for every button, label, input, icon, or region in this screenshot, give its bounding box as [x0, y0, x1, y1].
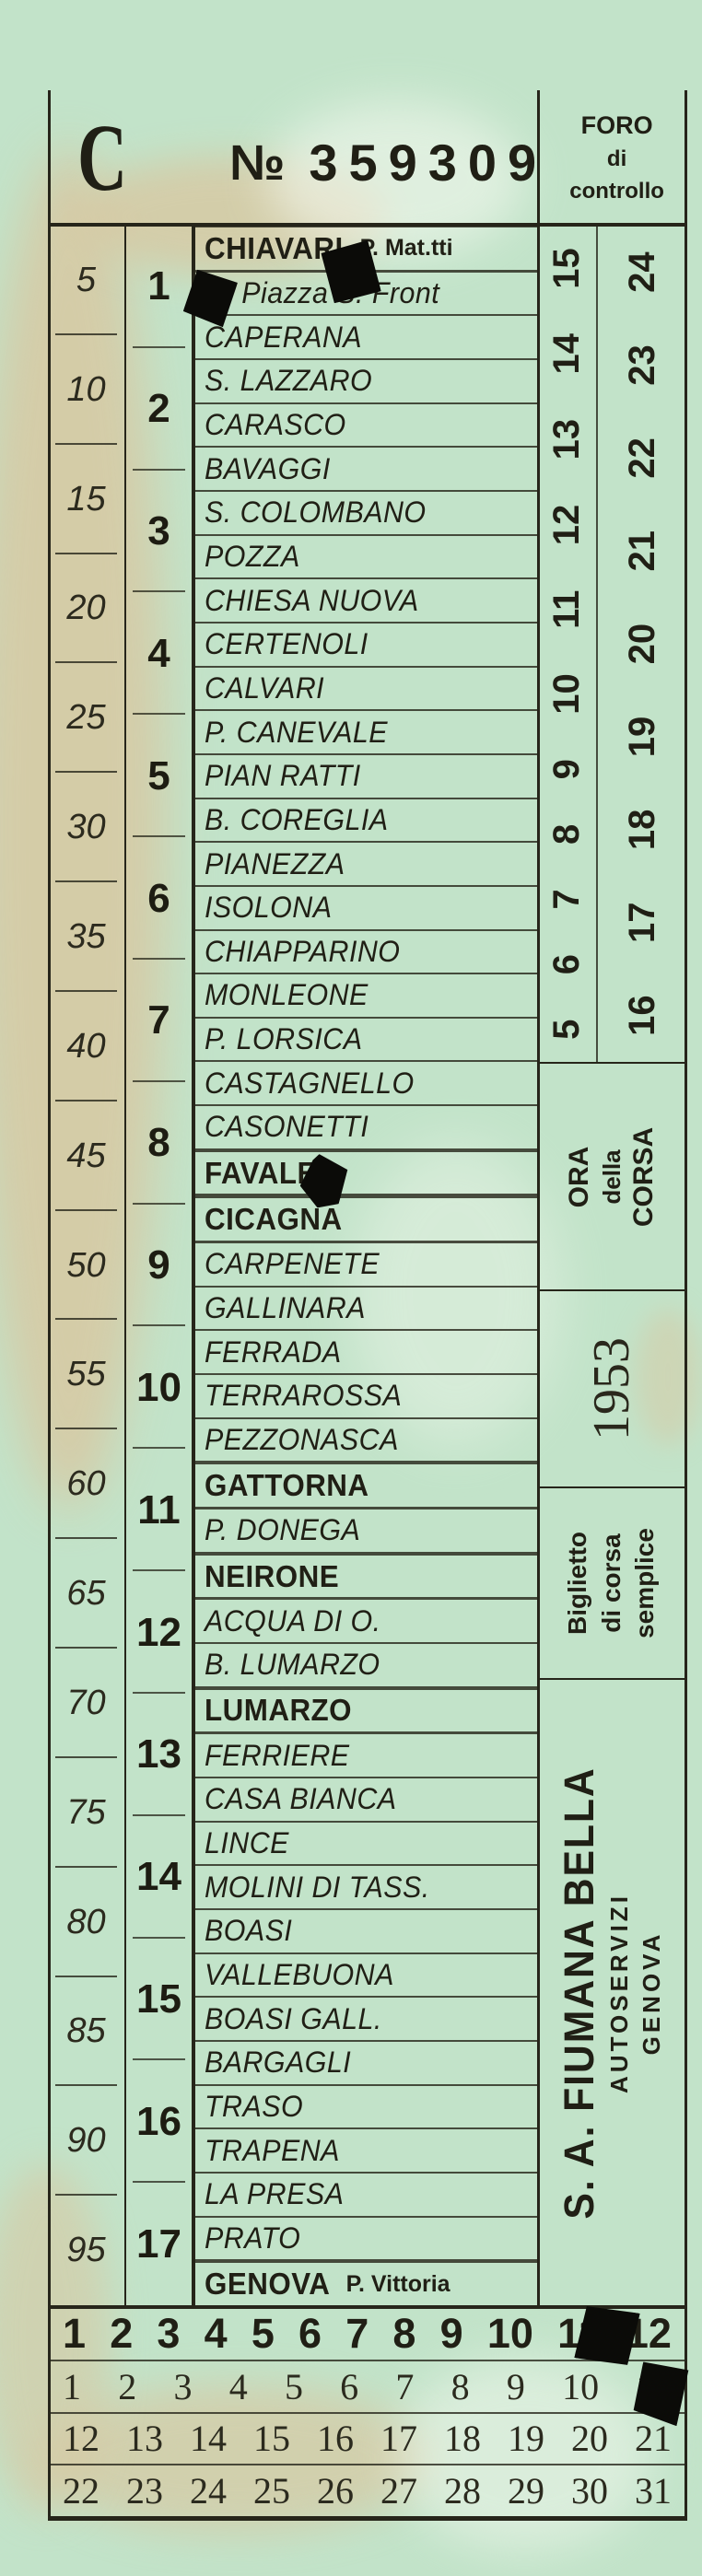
hours-inner-subcolumn: 56789101112131415 — [537, 226, 598, 1062]
serial-area: C № 359309 — [48, 90, 547, 226]
grid-number: 14 — [190, 2417, 227, 2460]
grid-number: 1 — [63, 2365, 81, 2408]
zone-number: 2 — [124, 348, 193, 471]
hour-number: 9 — [546, 759, 588, 779]
fare-value: 60 — [48, 1429, 124, 1539]
station-sub-name: P. Vittoria — [346, 2271, 450, 2298]
company-cell: S. A. FIUMANA BELLA AUTOSERVIZI GENOVA — [537, 1680, 686, 2305]
station-list: CHIAVARI P. Mat.tti RI Piazza S. Front C… — [193, 226, 537, 2305]
station-row: VALLEBUONA — [193, 1954, 537, 1999]
station-name: TRASO — [205, 2090, 303, 2124]
year-label: 1953 — [537, 1291, 686, 1486]
fare-value: 25 — [48, 663, 124, 773]
station-name: POZZA — [205, 540, 300, 574]
zone-number: 15 — [124, 1939, 193, 2061]
grid-number: 5 — [285, 2365, 303, 2408]
station-name: VALLEBUONA — [205, 1958, 394, 1992]
control-label-line: controllo — [569, 176, 664, 208]
grid-number: 24 — [190, 2469, 227, 2512]
grid-number: 10 — [487, 2310, 533, 2358]
station-name: CALVARI — [205, 671, 324, 705]
station-name: S. LAZZARO — [205, 364, 372, 398]
station-row: TRASO — [193, 2086, 537, 2130]
station-row: CHIAPPARINO — [193, 931, 537, 975]
hour-number: 8 — [546, 824, 588, 845]
hour-number: 20 — [622, 624, 663, 665]
station-name: PIANEZZA — [205, 847, 345, 881]
station-row: GENOVA P. Vittoria — [193, 2261, 537, 2305]
zone-number: 12 — [124, 1571, 193, 1694]
hour-number: 24 — [622, 251, 663, 293]
station-row: P. LORSICA — [193, 1019, 537, 1063]
station-name: BOASI — [205, 1914, 292, 1948]
station-name: CERTENOLI — [205, 627, 369, 661]
grid-number: 29 — [508, 2469, 544, 2512]
hour-number: 12 — [546, 505, 588, 546]
station-row: MOLINI DI TASS. — [193, 1866, 537, 1910]
hour-number: 22 — [622, 437, 663, 479]
fare-value: 30 — [48, 773, 124, 882]
grid-number: 21 — [635, 2417, 672, 2460]
hour-number: 7 — [546, 889, 588, 909]
grid-number: 1 — [63, 2310, 86, 2358]
fare-value: 80 — [48, 1868, 124, 1977]
ticket-type-line: semplice — [628, 1528, 661, 1638]
date-grid-row: 22232425262728293031 — [48, 2465, 686, 2516]
station-name: BARGAGLI — [205, 2046, 351, 2080]
hour-number: 10 — [546, 673, 588, 715]
serial-number: 359309 — [309, 133, 547, 192]
zone-column: 1 2 3 4 5 6 7 8 9 10 11 12 13 14 15 — [124, 226, 193, 2305]
station-name: CASTAGNELLO — [205, 1067, 415, 1101]
station-row: MONLEONE — [193, 974, 537, 1019]
grid-number: 2 — [110, 2310, 133, 2358]
station-row: CHIESA NUOVA — [193, 579, 537, 624]
station-row: ACQUA DI O. — [193, 1600, 537, 1644]
hours-inner-rotated: 56789101112131415 — [537, 226, 596, 1062]
station-row: LINCE — [193, 1823, 537, 1867]
station-row: PIAN RATTI — [193, 755, 537, 799]
company-label: S. A. FIUMANA BELLA AUTOSERVIZI GENOVA — [537, 1680, 686, 2305]
station-name: RI Piazza S. Front — [205, 276, 439, 310]
fare-value: 55 — [48, 1320, 124, 1429]
station-row: BOASI GALL. — [193, 1998, 537, 2042]
zone-number: 9 — [124, 1205, 193, 1327]
station-row: CASTAGNELLO — [193, 1062, 537, 1106]
hour-number: 18 — [622, 810, 663, 851]
date-grid-row: 12131415161718192021 — [48, 2414, 686, 2466]
grid-number: 22 — [63, 2469, 99, 2512]
grid-number: 4 — [205, 2310, 228, 2358]
grid-number: 5 — [252, 2310, 275, 2358]
grid-number: 6 — [340, 2365, 358, 2408]
station-name: CHIAPPARINO — [205, 935, 400, 969]
station-name: TERRAROSSA — [205, 1379, 402, 1413]
fare-value: 75 — [48, 1758, 124, 1868]
hour-number: 15 — [546, 248, 588, 289]
station-row: CAPERANA — [193, 316, 537, 360]
grid-number: 8 — [451, 2365, 470, 2408]
station-sub-name: P. Mat.tti — [360, 235, 453, 262]
fare-value: 35 — [48, 882, 124, 992]
grid-number: 28 — [444, 2469, 481, 2512]
grid-number: 12 — [63, 2417, 99, 2460]
ora-line: ORA — [562, 1146, 597, 1207]
serial-group: № 359309 — [229, 133, 547, 192]
grid-number: 23 — [126, 2469, 163, 2512]
fare-value: 70 — [48, 1649, 124, 1758]
hour-number: 13 — [546, 419, 588, 460]
fare-value: 85 — [48, 1977, 124, 2087]
company-sub-line: GENOVA — [636, 1930, 668, 2055]
station-name: PRATO — [205, 2221, 300, 2255]
ora-della-corsa-label: ORA della CORSA — [537, 1064, 686, 1289]
control-label-line: FORO — [581, 108, 653, 144]
station-name: LA PRESA — [205, 2177, 344, 2211]
ticket-type-line: Biglietto — [561, 1532, 594, 1635]
series-letter: C — [77, 103, 129, 213]
grid-number: 25 — [253, 2469, 290, 2512]
hour-number: 16 — [622, 995, 663, 1036]
station-name: CAPERANA — [205, 321, 362, 355]
grid-number: 9 — [440, 2310, 463, 2358]
zone-number: 10 — [124, 1326, 193, 1449]
ora-della-corsa-cell: ORA della CORSA — [537, 1064, 686, 1291]
date-grid-row: 1234567891011 — [48, 2361, 686, 2414]
station-row: CARPENETE — [193, 1243, 537, 1288]
scanned-bus-ticket: C № 359309 FORO di controllo 5 10 15 20 … — [0, 0, 702, 2576]
zone-number: 6 — [124, 837, 193, 960]
station-row: PRATO — [193, 2218, 537, 2262]
right-column: 56789101112131415 161718192021222324 ORA… — [537, 226, 686, 2305]
control-label-line: di — [607, 144, 626, 176]
fare-value: 40 — [48, 992, 124, 1102]
station-row: S. COLOMBANO — [193, 492, 537, 536]
fare-value: 95 — [48, 2196, 124, 2305]
grid-number: 10 — [562, 2365, 599, 2408]
fare-value: 10 — [48, 335, 124, 445]
station-name: S. COLOMBANO — [205, 495, 426, 530]
station-name: PIAN RATTI — [205, 759, 361, 793]
hour-number: 17 — [622, 902, 663, 943]
fare-value: 90 — [48, 2086, 124, 2196]
fare-value: 65 — [48, 1539, 124, 1649]
grid-number: 3 — [173, 2365, 192, 2408]
station-name: B. LUMARZO — [205, 1648, 380, 1682]
station-row: TRAPENA — [193, 2129, 537, 2174]
fare-value: 50 — [48, 1211, 124, 1321]
station-name: CASONETTI — [205, 1110, 369, 1144]
grid-number: 18 — [444, 2417, 481, 2460]
grid-number: 20 — [571, 2417, 608, 2460]
station-row: FERRIERE — [193, 1734, 537, 1778]
grid-number: 6 — [298, 2310, 322, 2358]
station-row: P. DONEGA — [193, 1509, 537, 1554]
station-name: PEZZONASCA — [205, 1423, 399, 1457]
hour-number: 19 — [622, 717, 663, 758]
station-name: P. LORSICA — [205, 1022, 362, 1056]
station-name: ACQUA DI O. — [205, 1604, 381, 1638]
company-sub-line: AUTOSERVIZI — [603, 1893, 636, 2093]
station-row: S. LAZZARO — [193, 360, 537, 404]
station-name: NEIRONE — [205, 1559, 339, 1594]
station-name: CASA BIANCA — [205, 1782, 397, 1816]
grid-number: 9 — [507, 2365, 525, 2408]
hour-number: 11 — [546, 590, 588, 629]
ora-line: CORSA — [626, 1126, 661, 1226]
station-row: ISOLONA — [193, 887, 537, 931]
hour-number: 5 — [546, 1020, 588, 1040]
station-row: FAVALE — [193, 1150, 537, 1197]
fare-value: 20 — [48, 554, 124, 664]
station-row: CASA BIANCA — [193, 1778, 537, 1823]
station-name: P. CANEVALE — [205, 716, 388, 750]
station-row: CARASCO — [193, 404, 537, 449]
station-row: POZZA — [193, 536, 537, 580]
station-name: CICAGNA — [205, 1202, 343, 1237]
zone-number: 4 — [124, 592, 193, 715]
station-row: PEZZONASCA — [193, 1419, 537, 1463]
station-name: BOASI GALL. — [205, 2002, 382, 2036]
numero-symbol: № — [229, 134, 285, 192]
hour-number: 6 — [546, 954, 588, 974]
grid-number: 15 — [253, 2417, 290, 2460]
fare-value: 5 — [48, 226, 124, 335]
hour-number: 21 — [622, 530, 663, 572]
grid-number: 13 — [126, 2417, 163, 2460]
station-row: GALLINARA — [193, 1288, 537, 1332]
grid-number: 7 — [395, 2365, 414, 2408]
fare-value: 45 — [48, 1102, 124, 1211]
station-row: B. COREGLIA — [193, 799, 537, 844]
grid-number: 8 — [392, 2310, 415, 2358]
station-name: FAVALE — [205, 1156, 317, 1191]
station-name: LUMARZO — [205, 1693, 352, 1728]
zone-number: 11 — [124, 1449, 193, 1571]
grid-number: 30 — [571, 2469, 608, 2512]
hour-numbers-cell: 56789101112131415 161718192021222324 — [537, 226, 686, 1064]
station-name: CARPENETE — [205, 1247, 380, 1281]
hour-number: 14 — [546, 333, 588, 375]
station-row: B. LUMARZO — [193, 1644, 537, 1688]
station-row: BARGAGLI — [193, 2042, 537, 2086]
hour-number: 23 — [622, 344, 663, 386]
hours-outer-subcolumn: 161718192021222324 — [598, 226, 686, 1062]
station-name: ISOLONA — [205, 891, 332, 925]
station-name: TRAPENA — [205, 2134, 340, 2168]
station-name: CHIAVARI — [205, 231, 344, 266]
zone-number: 14 — [124, 1816, 193, 1939]
company-name: S. A. FIUMANA BELLA — [556, 1766, 603, 2219]
grid-number: 16 — [317, 2417, 354, 2460]
grid-number: 31 — [635, 2469, 672, 2512]
grid-number: 7 — [345, 2310, 369, 2358]
station-row: CERTENOLI — [193, 624, 537, 668]
ticket-type-cell: Biglietto di corsa semplice — [537, 1488, 686, 1680]
station-row: CASONETTI — [193, 1106, 537, 1150]
zone-number: 1 — [124, 226, 193, 348]
station-row: CICAGNA — [193, 1196, 537, 1243]
grid-number: 19 — [508, 2417, 544, 2460]
station-name: CARASCO — [205, 408, 346, 442]
zone-number: 16 — [124, 2060, 193, 2183]
zone-number: 7 — [124, 960, 193, 1082]
zone-number: 8 — [124, 1082, 193, 1205]
ticket-header: C № 359309 FORO di controllo — [48, 90, 686, 226]
station-row: TERRAROSSA — [193, 1375, 537, 1419]
station-name: MONLEONE — [205, 978, 369, 1012]
station-name: P. DONEGA — [205, 1513, 360, 1547]
fare-column: 5 10 15 20 25 30 35 40 45 50 55 60 65 70… — [48, 226, 124, 2305]
station-row: LUMARZO — [193, 1688, 537, 1735]
station-row: NEIRONE — [193, 1554, 537, 1601]
station-name: GENOVA — [205, 2267, 330, 2302]
station-row: GATTORNA — [193, 1463, 537, 1509]
station-name: B. COREGLIA — [205, 803, 389, 837]
zone-number: 5 — [124, 715, 193, 837]
year-cell: 1953 — [537, 1291, 686, 1488]
station-name: MOLINI DI TASS. — [205, 1871, 430, 1905]
station-row: FERRADA — [193, 1331, 537, 1375]
grid-number: 27 — [380, 2469, 417, 2512]
station-name: FERRIERE — [205, 1739, 350, 1773]
zone-number: 17 — [124, 2183, 193, 2305]
station-name: CHIESA NUOVA — [205, 584, 419, 618]
fare-value: 15 — [48, 445, 124, 554]
grid-number: 26 — [317, 2469, 354, 2512]
station-row: BOASI — [193, 1910, 537, 1954]
station-name: FERRADA — [205, 1335, 342, 1370]
zone-number: 3 — [124, 471, 193, 593]
ora-line: della — [597, 1149, 627, 1204]
ticket-type-line: di corsa — [595, 1533, 628, 1632]
zone-number: 13 — [124, 1694, 193, 1816]
station-row: CALVARI — [193, 668, 537, 712]
grid-number: 2 — [118, 2365, 136, 2408]
station-row: PIANEZZA — [193, 843, 537, 887]
station-row: BAVAGGI — [193, 448, 537, 492]
grid-number: 17 — [380, 2417, 417, 2460]
station-row: LA PRESA — [193, 2174, 537, 2218]
ticket-type-label: Biglietto di corsa semplice — [537, 1488, 686, 1678]
station-name: GALLINARA — [205, 1291, 366, 1325]
station-name: BAVAGGI — [205, 452, 331, 486]
grid-number: 3 — [157, 2310, 180, 2358]
hours-outer-rotated: 161718192021222324 — [599, 226, 685, 1062]
station-name: LINCE — [205, 1826, 289, 1860]
control-hole-label: FORO di controllo — [547, 90, 686, 226]
station-row: P. CANEVALE — [193, 711, 537, 755]
station-name: GATTORNA — [205, 1468, 369, 1503]
grid-number: 4 — [229, 2365, 248, 2408]
